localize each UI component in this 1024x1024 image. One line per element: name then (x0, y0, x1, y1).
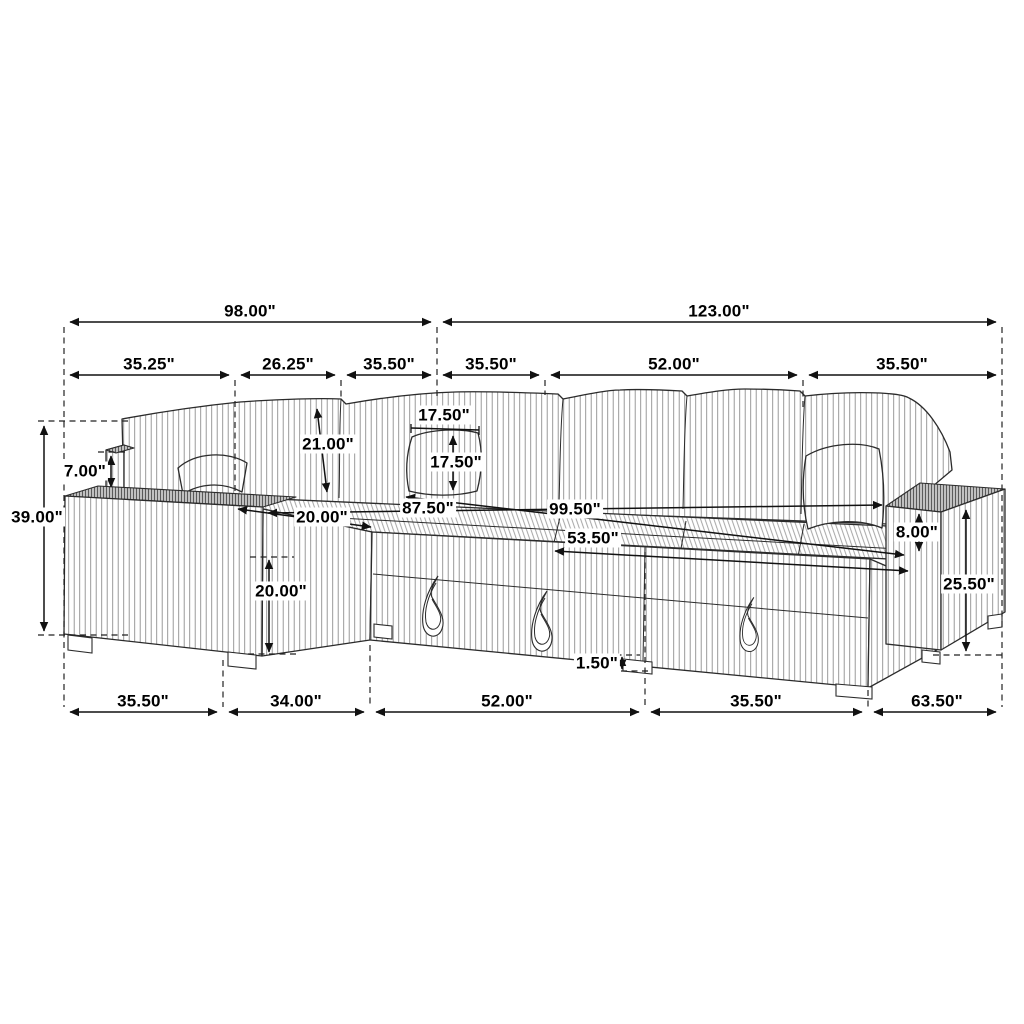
dim-leg-height: 1.50" (574, 653, 620, 672)
pillow-right (803, 444, 883, 529)
dim-seat-length-back: 87.50" (400, 498, 456, 517)
dim-armrest-above-seat: 8.00" (894, 522, 940, 541)
leg (623, 659, 652, 674)
dim-seat-front-height: 20.00" (253, 581, 309, 600)
dim-left-back-cushion-width: 35.50" (361, 354, 417, 373)
sofa-illustration (64, 389, 1005, 699)
dim-right-armrest-base: 63.50" (909, 691, 965, 710)
dim-center-back-cushion-width: 52.00" (646, 354, 702, 373)
leg (374, 624, 392, 639)
left-armrest (64, 486, 296, 669)
dim-left-armrest-width: 35.25" (121, 354, 177, 373)
dim-corner-back-width: 26.25" (260, 354, 316, 373)
dim-left-armrest-base: 35.50" (115, 691, 171, 710)
leg (988, 614, 1002, 629)
dim-seat-length-front: 99.50" (547, 499, 603, 518)
dim-back-above-armrest: 7.00" (62, 461, 108, 480)
dim-mid-back-cushion-width: 35.50" (463, 354, 519, 373)
dim-right-section-overall-width: 123.00" (686, 301, 751, 320)
dim-pillow-height: 17.50" (428, 452, 484, 471)
dim-seat-depth: 20.00" (294, 507, 350, 526)
dim-bed-front-length: 53.50" (565, 528, 621, 547)
dim-right-back-cushion-width: 35.50" (874, 354, 930, 373)
dim-overall-height: 39.00" (9, 507, 65, 526)
dimension-diagram: 98.00" 123.00" 35.25" 26.25" 35.50" 35.5… (0, 0, 1024, 1024)
dim-right-armrest-height: 25.50" (941, 574, 997, 593)
dim-left-section-overall-width: 98.00" (222, 301, 278, 320)
sofa-line-drawing (0, 0, 1024, 1024)
leg (836, 684, 872, 699)
dim-bed-base: 52.00" (479, 691, 535, 710)
dim-backrest-height: 21.00" (300, 434, 356, 453)
dim-chaise-base: 34.00" (268, 691, 324, 710)
left-armrest-front (64, 496, 263, 656)
leg (922, 650, 940, 664)
leg (68, 635, 92, 653)
dim-right-seat-base: 35.50" (728, 691, 784, 710)
dim-pillow-width: 17.50" (416, 405, 472, 424)
